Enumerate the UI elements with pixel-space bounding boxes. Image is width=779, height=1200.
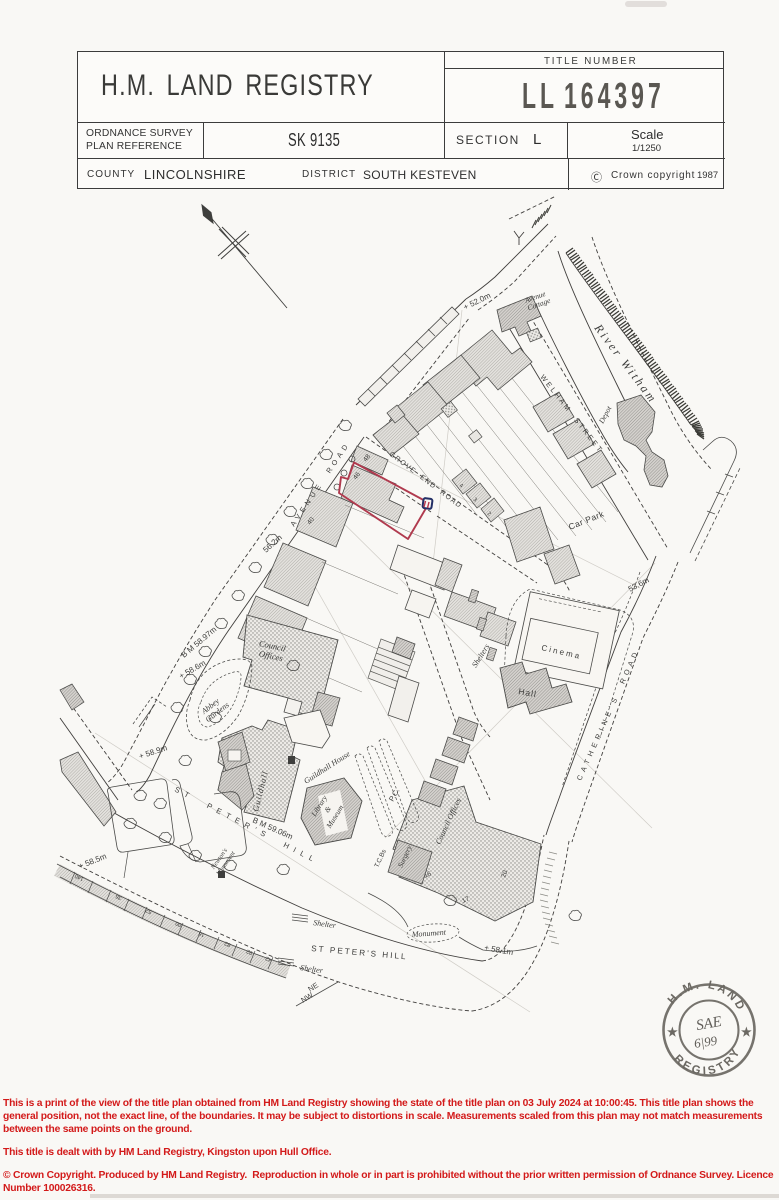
svg-text:6|99: 6|99 — [693, 1033, 718, 1051]
svg-text:92: 92 — [246, 948, 254, 956]
svg-text:+ 58.9m: + 58.9m — [138, 743, 169, 761]
svg-text:River Witham: River Witham — [591, 321, 660, 407]
svg-text:+ 58.5m: + 58.5m — [77, 851, 108, 870]
svg-text:Shelter: Shelter — [313, 918, 338, 930]
svg-text:00: 00 — [175, 920, 183, 928]
svg-text:SAE: SAE — [695, 1014, 723, 1034]
svg-text:+ 58.6m: + 58.6m — [178, 658, 208, 681]
svg-text:REGISTRY: REGISTRY — [671, 1045, 743, 1078]
svg-text:+ 52.0m: + 52.0m — [462, 291, 492, 312]
svg-text:P.C.: P.C. — [387, 787, 402, 803]
svg-text:Shelter: Shelter — [300, 963, 325, 975]
svg-text:Car Park: Car Park — [567, 508, 606, 531]
svg-text:53.6m: 53.6m — [627, 575, 651, 594]
svg-text:★: ★ — [741, 1025, 752, 1039]
svg-text:H.M. LAND: H.M. LAND — [666, 979, 748, 1014]
svg-text:Depot: Depot — [596, 404, 613, 426]
svg-text:★: ★ — [667, 1025, 678, 1039]
svg-text:ST PETER'S HILL: ST PETER'S HILL — [311, 944, 408, 961]
svg-text:82: 82 — [224, 940, 232, 948]
svg-text:16: 16 — [198, 930, 206, 938]
svg-text:T.C.Bs: T.C.Bs — [373, 848, 388, 869]
svg-text:Monument: Monument — [411, 928, 448, 939]
svg-text:+ 58.1m: + 58.1m — [484, 943, 515, 957]
